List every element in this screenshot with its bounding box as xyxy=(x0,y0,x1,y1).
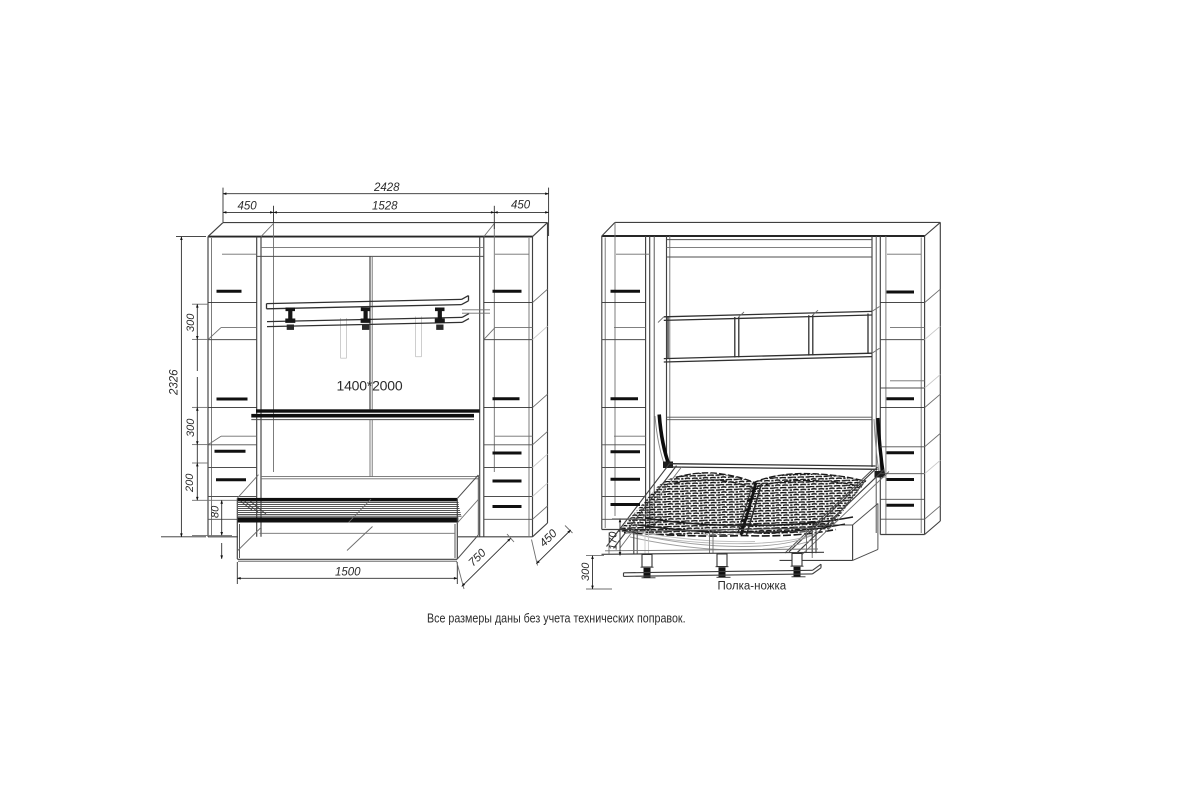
svg-text:1500: 1500 xyxy=(335,567,361,579)
svg-text:2428: 2428 xyxy=(373,182,400,194)
svg-text:1528: 1528 xyxy=(372,201,398,213)
svg-text:80: 80 xyxy=(210,505,222,518)
svg-text:750: 750 xyxy=(467,547,489,569)
svg-text:Полка-ножка: Полка-ножка xyxy=(718,581,787,593)
svg-text:300: 300 xyxy=(185,313,197,332)
svg-text:300: 300 xyxy=(185,418,197,437)
svg-text:Все размеры даны без учета тех: Все размеры даны без учета технических п… xyxy=(427,610,686,625)
svg-text:300: 300 xyxy=(580,562,592,581)
svg-text:1400*2000: 1400*2000 xyxy=(337,378,403,394)
svg-text:450: 450 xyxy=(511,200,531,212)
svg-text:450: 450 xyxy=(238,201,258,213)
svg-text:200: 200 xyxy=(184,473,196,493)
svg-text:170: 170 xyxy=(608,531,620,550)
svg-text:450: 450 xyxy=(538,527,560,549)
svg-text:2326: 2326 xyxy=(169,369,181,396)
